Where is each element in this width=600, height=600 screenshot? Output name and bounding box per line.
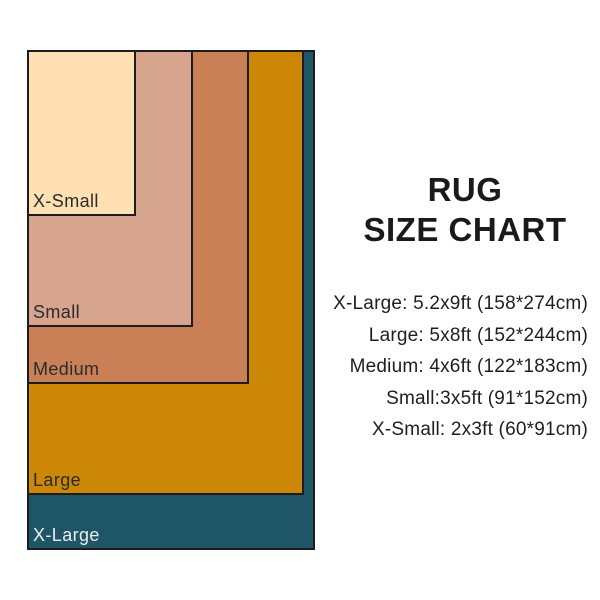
rect-label-x-small: X-Small [33,192,99,212]
legend-line-x-large: X-Large: 5.2x9ft (158*274cm) [333,288,588,320]
legend-line-small: Small:3x5ft (91*152cm) [333,383,588,415]
legend-line-large: Large: 5x8ft (152*244cm) [333,320,588,352]
rect-label-large: Large [33,471,81,491]
rect-label-small: Small [33,303,80,323]
rug-size-chart-page: X-Large Large Medium Small X-Small RUG S… [0,0,600,600]
page-title-line-2: SIZE CHART [340,210,590,250]
legend-line-medium: Medium: 4x6ft (122*183cm) [333,351,588,383]
rect-x-small: X-Small [27,50,136,216]
rect-label-medium: Medium [33,360,99,380]
size-legend: X-Large: 5.2x9ft (158*274cm) Large: 5x8f… [333,288,588,446]
rect-label-x-large: X-Large [33,526,100,546]
page-title: RUG SIZE CHART [340,170,590,250]
page-title-line-1: RUG [340,170,590,210]
legend-line-x-small: X-Small: 2x3ft (60*91cm) [333,414,588,446]
